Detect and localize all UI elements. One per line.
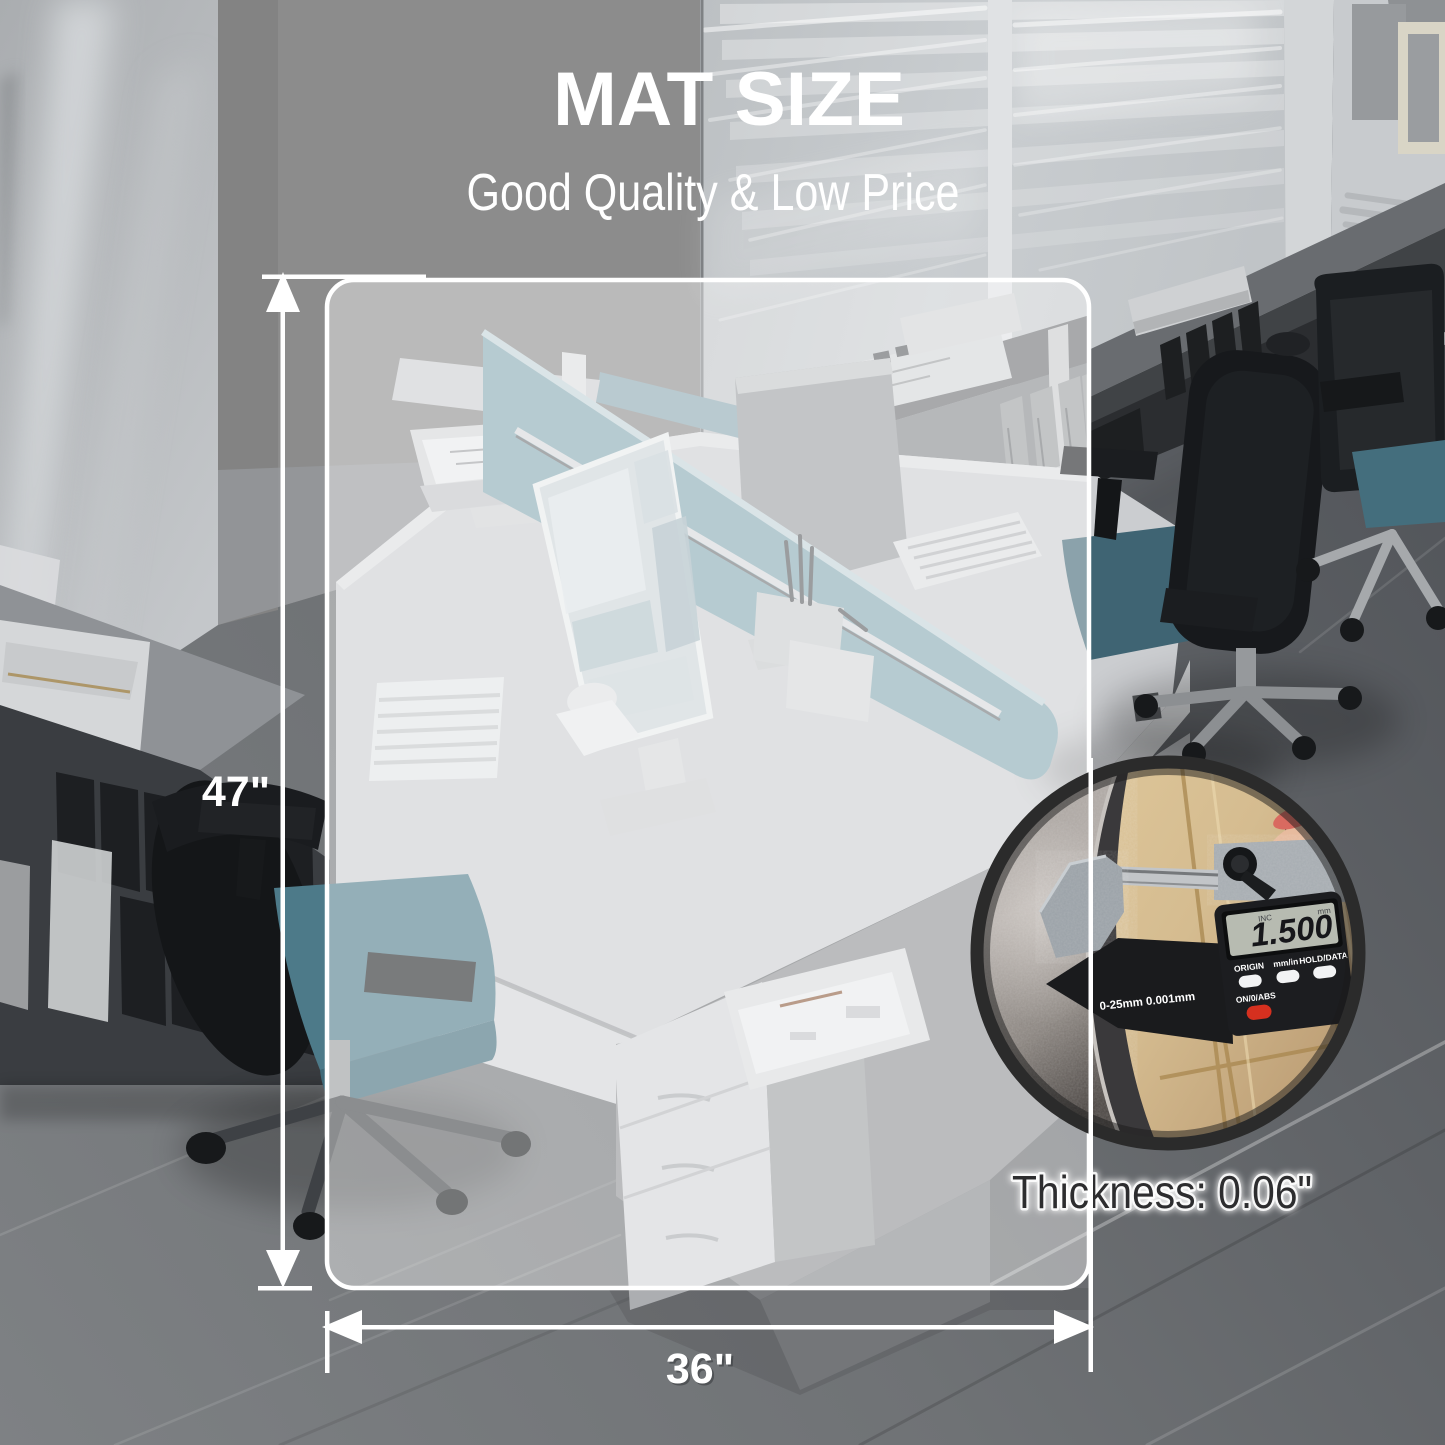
svg-text:36": 36" bbox=[666, 1345, 734, 1393]
svg-text:47": 47" bbox=[202, 768, 270, 816]
svg-text:INC: INC bbox=[1258, 913, 1273, 924]
svg-text:Thickness: 0.06": Thickness: 0.06" bbox=[1012, 1166, 1312, 1218]
svg-text:MAT SIZE: MAT SIZE bbox=[553, 57, 905, 142]
svg-text:Good Quality & Low Price: Good Quality & Low Price bbox=[467, 164, 960, 222]
svg-text:mm: mm bbox=[1317, 906, 1332, 917]
